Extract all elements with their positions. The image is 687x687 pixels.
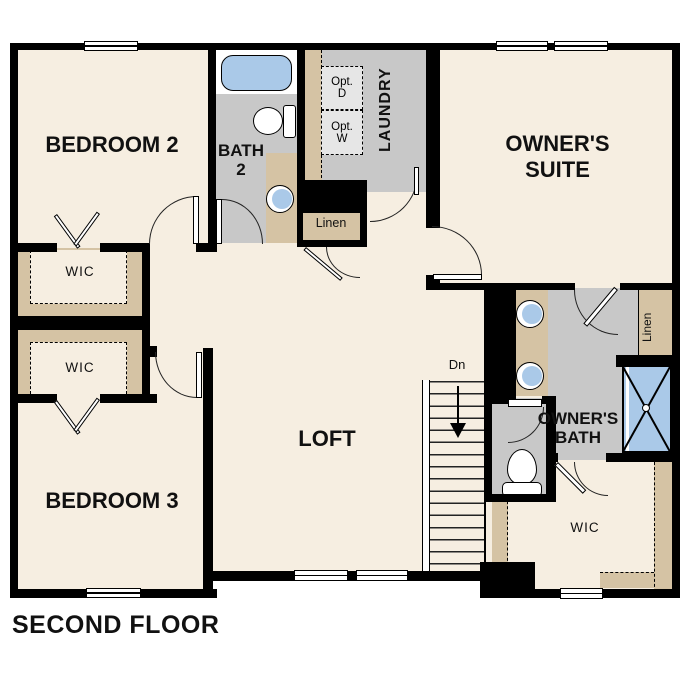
door-leaf — [508, 399, 542, 407]
optional-washer: Opt. W — [321, 110, 363, 155]
wall — [10, 243, 57, 252]
sink-basin — [522, 366, 542, 386]
toilet-bowl — [253, 107, 283, 135]
optional-dryer-label: Opt. — [331, 76, 353, 88]
wall — [10, 316, 150, 330]
owners-suite-label-line1: OWNER'S — [470, 131, 645, 157]
optional-dryer: Opt. D — [321, 66, 363, 110]
sink-basin — [272, 189, 292, 209]
wall — [546, 453, 558, 462]
stairs-dn-label: Dn — [442, 358, 472, 373]
bedroom2-label: BEDROOM 2 — [22, 132, 202, 157]
wall — [10, 394, 57, 403]
door-leaf — [216, 199, 222, 244]
wall — [142, 328, 150, 403]
owners-bath-label: OWNER'S BATH — [533, 409, 623, 447]
wall — [426, 49, 440, 228]
sink-basin — [522, 304, 542, 324]
wic-bedroom2-label: WIC — [50, 264, 110, 280]
owners-suite-label-line2: SUITE — [470, 157, 645, 183]
floor-title: SECOND FLOOR — [12, 611, 302, 640]
toilet-bowl — [507, 449, 537, 485]
window — [560, 588, 603, 599]
linen-hall-label: Linen — [302, 216, 360, 230]
stairs-arrow-head — [450, 423, 466, 438]
window — [496, 41, 548, 51]
window — [554, 41, 608, 51]
bath2-label-line1: BATH — [211, 141, 271, 160]
owners-suite-label: OWNER'S SUITE — [470, 131, 645, 183]
door-leaf — [414, 167, 419, 195]
door-leaf — [433, 274, 482, 280]
bath2-label-line2: 2 — [211, 160, 271, 179]
wic-owners-shelf-left — [492, 496, 508, 566]
wic-owners-shelf-bottom — [600, 572, 654, 588]
floor-plan: Opt. D Opt. W — [0, 0, 687, 687]
wall — [100, 394, 157, 403]
stairs-railing — [422, 380, 430, 571]
door-leaf — [193, 196, 199, 244]
wall — [100, 243, 150, 252]
laundry-shelf — [305, 50, 322, 183]
sink — [516, 362, 544, 390]
stairs-arrow-line — [457, 386, 459, 424]
window — [356, 570, 408, 581]
laundry-label: LAUNDRY — [377, 54, 407, 166]
owners-bath-label-line2: BATH — [533, 428, 623, 447]
bedroom3-label: BEDROOM 3 — [22, 488, 202, 513]
wall — [480, 562, 535, 598]
stairs-side-wall — [484, 378, 486, 573]
wall — [484, 283, 516, 400]
wall — [203, 348, 213, 598]
shower — [622, 365, 672, 453]
wic-owners-label: WIC — [555, 520, 615, 536]
wall — [297, 49, 305, 189]
wall — [672, 43, 680, 598]
optional-washer-label2: W — [337, 133, 348, 145]
window — [86, 588, 141, 598]
window — [294, 570, 348, 581]
window — [84, 41, 138, 51]
owners-bath-label-line1: OWNER'S — [533, 409, 623, 428]
wall — [620, 283, 672, 290]
wall — [488, 396, 508, 404]
wall — [213, 571, 493, 581]
optional-washer-label: Opt. — [331, 121, 353, 133]
wall — [542, 396, 556, 404]
sink — [266, 185, 294, 213]
bathtub — [221, 55, 292, 91]
door-leaf — [196, 352, 202, 398]
toilet-tank — [283, 105, 296, 138]
optional-dryer-label2: D — [338, 88, 346, 100]
shower-drain — [642, 404, 650, 412]
wall — [142, 243, 150, 320]
linen-owners-label: Linen — [641, 296, 665, 358]
sink — [516, 300, 544, 328]
wic-bedroom3-label: WIC — [50, 360, 110, 376]
loft-label: LOFT — [282, 426, 372, 451]
wic-owners-shelf-right — [654, 462, 672, 592]
wall — [606, 453, 672, 462]
wall — [196, 243, 217, 252]
bath2-label: BATH 2 — [211, 141, 271, 179]
